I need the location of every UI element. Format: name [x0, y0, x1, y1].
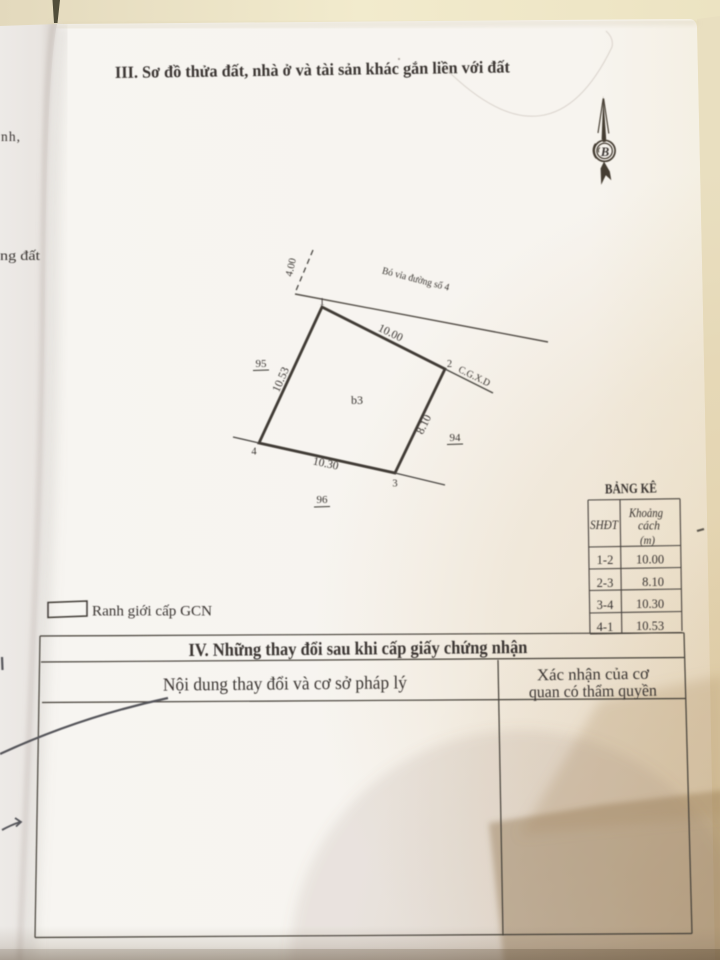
svg-text:BẢNG KÊ: BẢNG KÊ: [605, 480, 657, 498]
svg-text:(m): (m): [640, 533, 655, 547]
svg-text:B: B: [600, 145, 609, 159]
svg-text:10.53: 10.53: [636, 619, 664, 633]
svg-text:Ranh giới cấp GCN: Ranh giới cấp GCN: [92, 604, 213, 620]
svg-text:8.10: 8.10: [642, 575, 664, 589]
svg-text:3-4: 3-4: [597, 598, 614, 612]
svg-text:94: 94: [450, 432, 462, 444]
svg-text:2: 2: [447, 359, 452, 370]
svg-text:10.00: 10.00: [636, 553, 664, 567]
svg-text:10.30: 10.30: [636, 597, 664, 611]
svg-text:ng đất: ng đất: [0, 249, 40, 264]
svg-text:4-1: 4-1: [597, 620, 614, 634]
svg-text:96: 96: [317, 494, 329, 506]
svg-text:Nội dung thay đổi và cơ sở phá: Nội dung thay đổi và cơ sở pháp lý: [163, 673, 408, 695]
svg-text:1-2: 1-2: [597, 553, 614, 567]
svg-text:IV. Những thay đổi sau khi cấp: IV. Những thay đổi sau khi cấp giấy chứn…: [188, 638, 528, 661]
svg-text:nh,: nh,: [1, 129, 20, 144]
svg-text:b3: b3: [351, 393, 363, 407]
svg-text:quan có thẩm quyền: quan có thẩm quyền: [529, 681, 657, 702]
svg-text:SHĐT: SHĐT: [590, 517, 619, 532]
svg-text:95: 95: [256, 358, 268, 370]
svg-text:cách: cách: [638, 518, 660, 533]
svg-text:2-3: 2-3: [597, 576, 614, 590]
svg-text:1: 1: [319, 297, 324, 308]
svg-text:4: 4: [251, 447, 257, 458]
svg-text:3: 3: [392, 479, 397, 490]
